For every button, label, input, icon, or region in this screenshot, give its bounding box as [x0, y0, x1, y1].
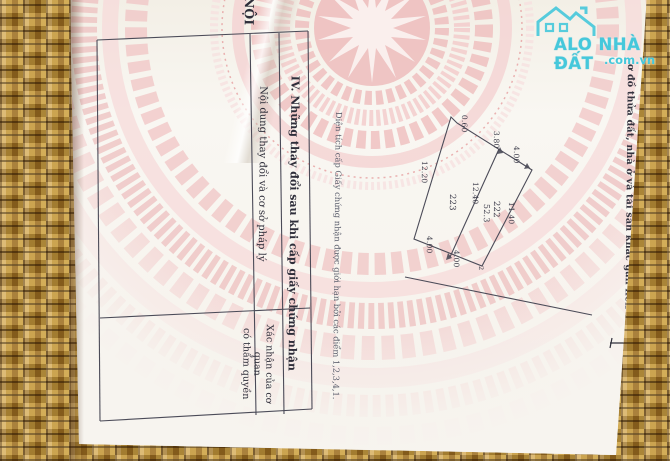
dim-bottom1: 4.00: [424, 236, 433, 254]
table-col2-line2: có thẩm quyền: [239, 312, 252, 416]
dim-divider: 12.40: [470, 182, 479, 206]
photo-land-certificate: NỘI ơ đồ thửa đất, nhà ở và tài sản khác…: [0, 0, 670, 461]
listing-watermark: ALO NHÀ ĐẤT .com.vn: [528, 2, 670, 80]
section3-heading: ơ đồ thửa đất, nhà ở và tài sản khác gắn…: [617, 64, 635, 308]
road-line: [405, 277, 592, 315]
dim-jog: 0.60: [459, 115, 468, 133]
page-corner-text: NỘI: [238, 0, 256, 29]
section4-title: IV. Những thay đổi sau khi cấp giấy chứn…: [280, 36, 307, 411]
dim-top1: 3.80: [491, 131, 500, 149]
survey-point-2: 2: [477, 266, 484, 274]
table-col2-line1: Xác nhận của cơ quan: [251, 312, 275, 416]
dim-bottom2: 4.00: [451, 250, 460, 268]
table-col1-header: Nội dung thay đổi và cơ sở pháp lý: [248, 38, 276, 310]
table-col2-header: Xác nhận của cơ quan có thẩm quyền: [249, 312, 276, 416]
parcel-number-223: 223: [446, 194, 456, 214]
house-icon: [536, 4, 636, 38]
dim-right: 11.40: [506, 202, 515, 226]
north-arrow-icon: [610, 338, 640, 348]
dim-top2: 4.00: [511, 146, 520, 164]
parcel-number-222: 222: [490, 201, 500, 219]
dim-left: 12.20: [419, 161, 428, 185]
diagram-note: Diện tích cấp Giấy chứng nhận được giới …: [330, 112, 343, 336]
parcel-area-222: 52.3: [481, 204, 490, 224]
watermark-domain-text: .com.vn: [604, 53, 655, 67]
